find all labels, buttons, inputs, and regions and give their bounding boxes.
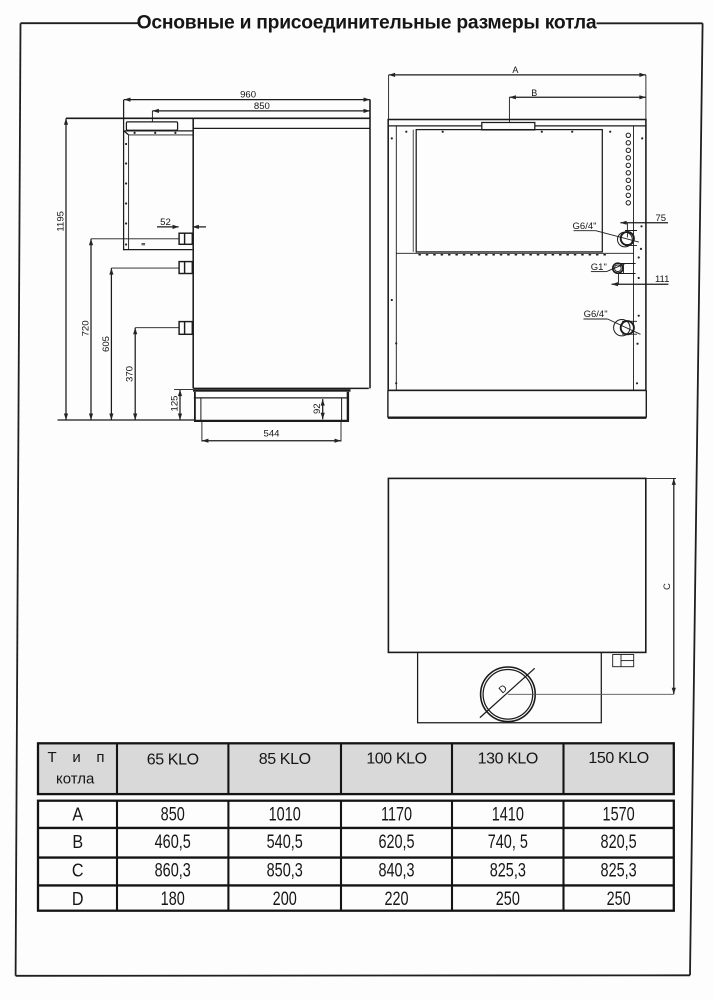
svg-text:250: 250 <box>607 888 631 909</box>
svg-text:820,5: 820,5 <box>601 831 637 852</box>
svg-text:A: A <box>72 803 83 824</box>
svg-text:250: 250 <box>496 888 520 909</box>
svg-text:100 KLO: 100 KLO <box>366 751 426 768</box>
svg-text:C: C <box>662 583 673 590</box>
svg-text:130 KLO: 130 KLO <box>478 750 538 767</box>
svg-text:65 KLO: 65 KLO <box>147 751 199 768</box>
svg-text:1010: 1010 <box>269 804 301 825</box>
svg-text:460,5: 460,5 <box>155 831 191 852</box>
svg-text:D: D <box>72 888 84 909</box>
svg-text:C: C <box>72 859 84 880</box>
svg-text:370: 370 <box>125 366 136 382</box>
svg-text:150 KLO: 150 KLO <box>588 750 648 767</box>
svg-text:860,3: 860,3 <box>155 860 191 881</box>
svg-text:B: B <box>531 88 537 98</box>
svg-text:850,3: 850,3 <box>267 860 303 881</box>
svg-text:A: A <box>512 65 518 75</box>
svg-text:180: 180 <box>161 888 185 909</box>
svg-text:92: 92 <box>312 403 323 414</box>
svg-text:605: 605 <box>101 336 112 352</box>
svg-text:75: 75 <box>656 213 667 224</box>
svg-text:G6/4": G6/4" <box>584 309 608 320</box>
svg-text:825,3: 825,3 <box>490 860 526 881</box>
svg-text:1410: 1410 <box>492 804 524 825</box>
svg-text:125: 125 <box>169 395 180 411</box>
svg-text:540,5: 540,5 <box>267 831 303 852</box>
svg-text:котла: котла <box>56 770 95 787</box>
svg-text:544: 544 <box>263 429 280 440</box>
svg-text:825,3: 825,3 <box>601 860 637 881</box>
svg-text:740, 5: 740, 5 <box>488 831 528 852</box>
svg-text:200: 200 <box>273 888 297 909</box>
svg-text:960: 960 <box>240 90 256 101</box>
svg-text:D: D <box>497 683 510 696</box>
svg-text:220: 220 <box>384 888 408 909</box>
svg-text:850: 850 <box>161 804 185 825</box>
svg-text:B: B <box>72 831 83 852</box>
svg-text:840,3: 840,3 <box>378 860 414 881</box>
svg-text:1195: 1195 <box>55 211 66 232</box>
svg-text:Основные и присоединительные р: Основные и присоединительные размеры кот… <box>137 13 597 34</box>
svg-text:52: 52 <box>160 217 171 228</box>
svg-text:720: 720 <box>80 320 91 336</box>
svg-text:1170: 1170 <box>381 804 412 825</box>
svg-text:1570: 1570 <box>603 804 635 825</box>
svg-text:850: 850 <box>254 101 270 112</box>
svg-text:Т и п: Т и п <box>48 749 105 766</box>
svg-text:G6/4": G6/4" <box>573 221 597 232</box>
svg-text:G1": G1" <box>591 262 607 273</box>
svg-text:111: 111 <box>655 274 669 285</box>
svg-text:85 KLO: 85 KLO <box>259 751 311 768</box>
svg-text:620,5: 620,5 <box>378 831 414 852</box>
